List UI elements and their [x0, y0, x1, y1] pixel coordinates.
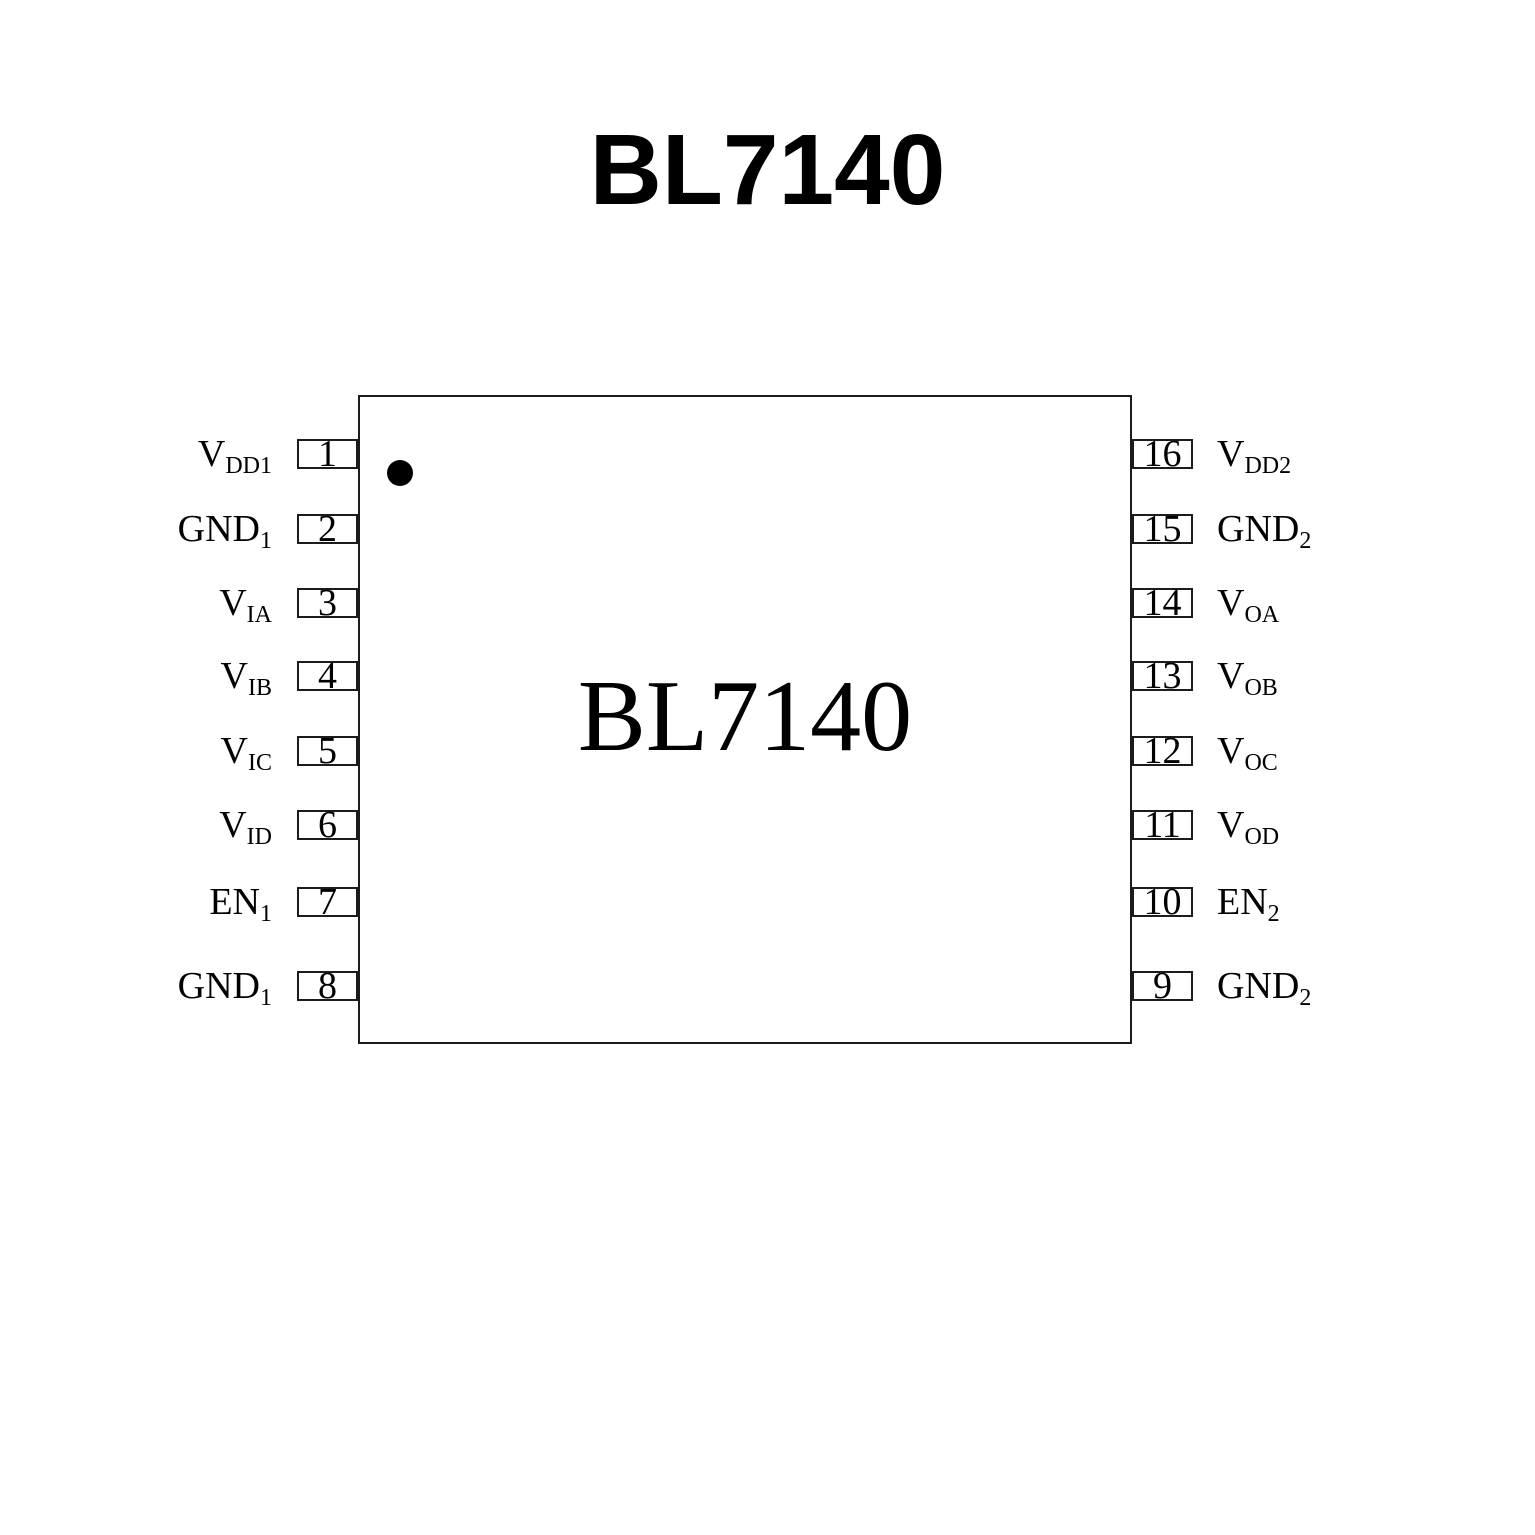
pin-6-box: 6 [297, 810, 358, 840]
pin-label-subscript: 2 [1299, 985, 1311, 1011]
pin-2-label: GND1 [40, 514, 272, 544]
pin-label-base: V [1217, 655, 1244, 697]
pin-label-subscript: DD1 [225, 453, 272, 479]
pin-label-subscript: ID [247, 824, 272, 850]
pin-label-subscript: 1 [260, 985, 272, 1011]
pin-13-label: VOB [1217, 661, 1517, 691]
pin-14-number: 14 [1134, 590, 1191, 616]
pin-2-box: 2 [297, 514, 358, 544]
pin-15-label: GND2 [1217, 514, 1517, 544]
pin-label-base: V [221, 730, 248, 772]
pin-label-base: GND [178, 965, 260, 1007]
pin-6-number: 6 [299, 812, 356, 838]
pin-12-label: VOC [1217, 736, 1517, 766]
pin-4-number: 4 [299, 663, 356, 689]
pin-label-subscript: IB [248, 675, 272, 701]
pin-label-base: V [1217, 804, 1244, 846]
pin-15-number: 15 [1134, 516, 1191, 542]
pin-7-label: EN1 [40, 887, 272, 917]
pin-label-subscript: 2 [1299, 528, 1311, 554]
pin-label-base: GND [1217, 508, 1299, 550]
chip-label: BL7140 [360, 663, 1130, 771]
pin-14-label: VOA [1217, 588, 1517, 618]
pin-label-base: V [1217, 582, 1244, 624]
page-title: BL7140 [0, 112, 1535, 228]
pin-1-label: VDD1 [40, 439, 272, 469]
pin-1-box: 1 [297, 439, 358, 469]
pin-label-base: V [1217, 433, 1244, 475]
pin-3-number: 3 [299, 590, 356, 616]
pin-6-label: VID [40, 810, 272, 840]
pin-8-box: 8 [297, 971, 358, 1001]
pin-label-subscript: OA [1244, 602, 1279, 628]
pin-label-subscript: OC [1244, 750, 1277, 776]
pin-4-label: VIB [40, 661, 272, 691]
pin-label-base: V [198, 433, 225, 475]
pin-10-box: 10 [1132, 887, 1193, 917]
pin-11-number: 11 [1134, 812, 1191, 838]
pin1-indicator-icon [387, 460, 413, 486]
pin-8-number: 8 [299, 973, 356, 999]
pin-7-number: 7 [299, 889, 356, 915]
pin-5-number: 5 [299, 738, 356, 764]
pin-15-box: 15 [1132, 514, 1193, 544]
pin-14-box: 14 [1132, 588, 1193, 618]
pin-label-base: V [1217, 730, 1244, 772]
pin-11-label: VOD [1217, 810, 1517, 840]
pin-label-subscript: 1 [260, 528, 272, 554]
pin-label-base: V [219, 804, 246, 846]
pin-label-subscript: IC [248, 750, 272, 776]
pin-3-label: VIA [40, 588, 272, 618]
pin-label-base: GND [1217, 965, 1299, 1007]
pin-1-number: 1 [299, 441, 356, 467]
pin-8-label: GND1 [40, 971, 272, 1001]
pin-label-subscript: IA [247, 602, 272, 628]
pin-16-label: VDD2 [1217, 439, 1517, 469]
pin-9-label: GND2 [1217, 971, 1517, 1001]
pin-5-label: VIC [40, 736, 272, 766]
pin-9-number: 9 [1134, 973, 1191, 999]
pin-9-box: 9 [1132, 971, 1193, 1001]
pinout-diagram-page: BL7140 BL7140 1VDD12GND13VIA4VIB5VIC6VID… [0, 0, 1535, 1535]
pin-12-box: 12 [1132, 736, 1193, 766]
pin-13-number: 13 [1134, 663, 1191, 689]
pin-16-box: 16 [1132, 439, 1193, 469]
pin-7-box: 7 [297, 887, 358, 917]
pin-label-base: EN [1217, 881, 1268, 923]
pin-5-box: 5 [297, 736, 358, 766]
pin-11-box: 11 [1132, 810, 1193, 840]
pin-label-base: EN [209, 881, 260, 923]
pin-label-base: GND [178, 508, 260, 550]
pin-label-subscript: 2 [1268, 901, 1280, 927]
pin-label-subscript: 1 [260, 901, 272, 927]
pin-12-number: 12 [1134, 738, 1191, 764]
pin-13-box: 13 [1132, 661, 1193, 691]
pin-label-subscript: OD [1244, 824, 1279, 850]
pin-label-subscript: DD2 [1244, 453, 1291, 479]
pin-3-box: 3 [297, 588, 358, 618]
pin-10-number: 10 [1134, 889, 1191, 915]
pin-16-number: 16 [1134, 441, 1191, 467]
pin-2-number: 2 [299, 516, 356, 542]
pin-label-base: V [221, 655, 248, 697]
pin-4-box: 4 [297, 661, 358, 691]
pin-label-subscript: OB [1244, 675, 1277, 701]
pin-10-label: EN2 [1217, 887, 1517, 917]
chip-body: BL7140 [358, 395, 1132, 1044]
pin-label-base: V [219, 582, 246, 624]
